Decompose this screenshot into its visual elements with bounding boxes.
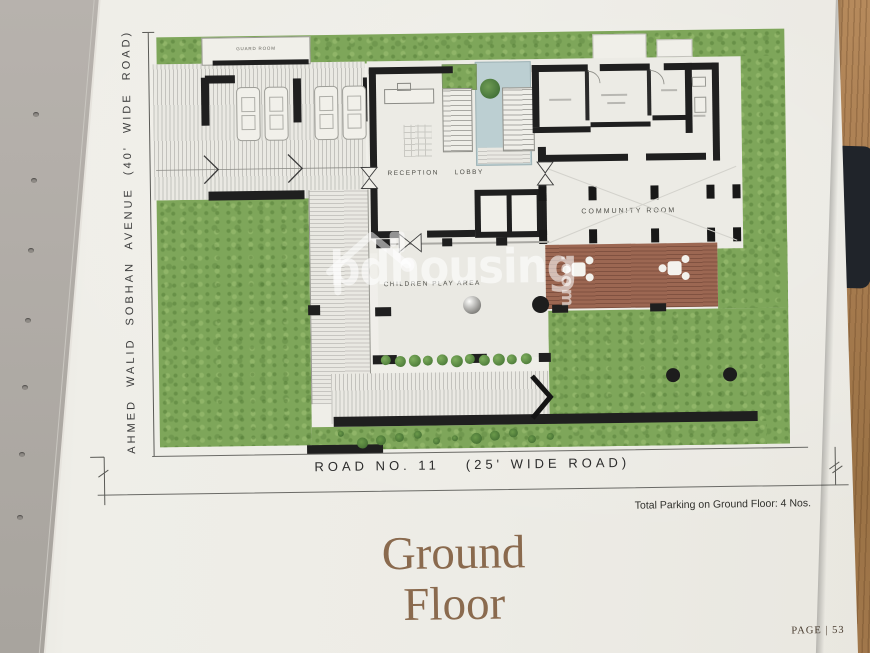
binding-hole xyxy=(33,112,39,117)
page-title-line2: Floor xyxy=(304,577,605,632)
binding-hole xyxy=(17,515,23,520)
page-title-line1: Ground xyxy=(303,526,604,581)
binding-hole xyxy=(25,318,31,323)
page-number: PAGE | 53 xyxy=(733,625,845,638)
binding-hole xyxy=(22,385,28,390)
page-title: Ground Floor xyxy=(303,526,604,632)
lobby-label: LOBBY xyxy=(443,169,495,177)
road-name: ROAD NO. 11 xyxy=(314,457,440,474)
binding-hole xyxy=(19,452,25,457)
brochure-page: GUARD ROOM xyxy=(0,0,870,653)
road-width: (25' WIDE ROAD) xyxy=(466,455,631,472)
binding-hole xyxy=(28,248,34,253)
photo-of-brochure-page: GUARD ROOM xyxy=(0,0,870,653)
reception-label: RECEPTION xyxy=(378,169,448,177)
floor-plan-sheet: GUARD ROOM xyxy=(0,0,870,653)
binding-hole xyxy=(31,178,37,183)
